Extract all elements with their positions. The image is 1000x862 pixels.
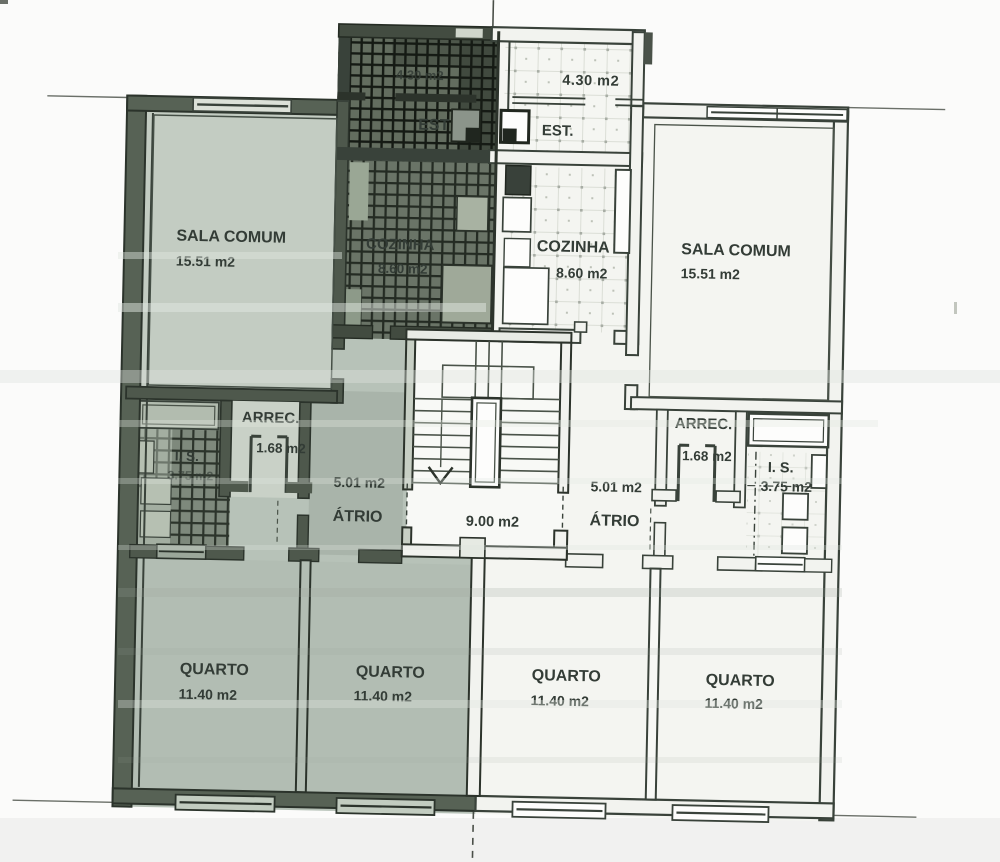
svg-text:4.30 m2: 4.30 m2	[396, 67, 444, 83]
svg-text:COZINHA: COZINHA	[537, 238, 611, 257]
svg-text:SALA COMUM: SALA COMUM	[681, 241, 791, 260]
svg-text:I. S.: I. S.	[768, 460, 794, 477]
svg-text:ÁTRIO: ÁTRIO	[589, 510, 639, 530]
svg-text:1.68 m2: 1.68 m2	[256, 440, 306, 456]
svg-text:QUARTO: QUARTO	[180, 661, 249, 679]
svg-text:I. S.: I. S.	[175, 449, 199, 464]
svg-text:1.68 m2: 1.68 m2	[682, 448, 732, 464]
svg-text:QUARTO: QUARTO	[532, 667, 601, 685]
svg-text:EST.: EST.	[542, 122, 574, 140]
svg-text:ÁTRIO: ÁTRIO	[333, 506, 383, 526]
svg-text:15.51 m2: 15.51 m2	[681, 265, 741, 282]
svg-text:SALA COMUM: SALA COMUM	[176, 228, 286, 247]
svg-text:8.60 m2: 8.60 m2	[556, 264, 608, 281]
svg-text:QUARTO: QUARTO	[356, 663, 425, 681]
svg-text:QUARTO: QUARTO	[706, 672, 775, 690]
svg-text:EST: EST	[418, 117, 450, 135]
svg-text:COZINHA: COZINHA	[366, 236, 435, 254]
svg-text:9.00 m2: 9.00 m2	[466, 514, 520, 531]
svg-text:8.60 m2: 8.60 m2	[378, 261, 428, 277]
svg-text:4.30 m2: 4.30 m2	[562, 73, 619, 90]
